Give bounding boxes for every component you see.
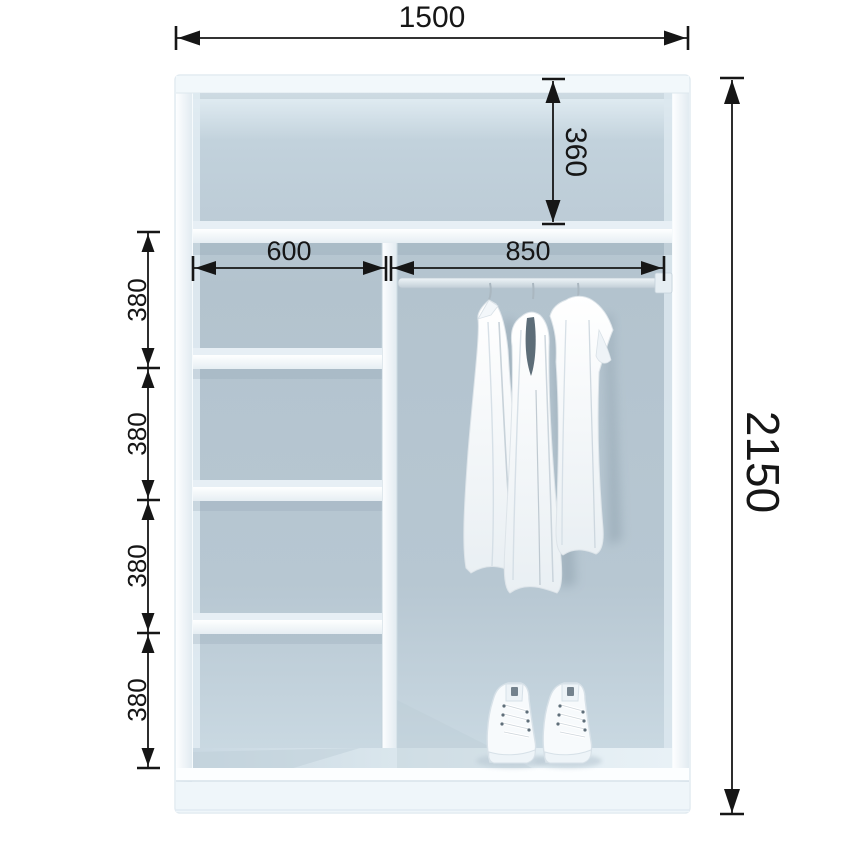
dim-overall-width: 1500 [176,1,688,50]
plinth [176,782,689,812]
dim-label-380-1: 380 [122,278,152,321]
left-shelf-2 [193,480,382,511]
dim-label-360: 360 [559,127,592,177]
dim-label-2150: 2150 [737,411,789,513]
dim-label-1500: 1500 [399,1,466,34]
dim-label-380-2: 380 [122,412,152,455]
wardrobe [175,75,690,813]
sneaker-left [487,683,535,763]
dim-label-380-3: 380 [122,544,152,587]
diagram-canvas: 1500 360 600 850 [0,0,868,868]
cabinet-right-panel [673,76,689,812]
bottom-front-edge [176,768,689,781]
cabinet-top-panel [176,76,689,93]
dim-shelf-gap-chain: 380 380 380 380 [122,232,160,768]
dim-overall-height: 2150 [720,78,789,814]
top-compartment [193,93,672,229]
wardrobe-dimension-drawing: 1500 360 600 850 [0,0,868,868]
sneaker-right [543,683,591,763]
cabinet-left-panel [176,76,192,812]
left-shelf-1 [193,348,382,379]
center-divider [382,243,397,772]
left-shelf-3 [193,613,382,644]
dim-label-850: 850 [505,236,550,266]
dim-label-600: 600 [266,236,311,266]
dim-label-380-4: 380 [122,678,152,721]
top-shelf [193,221,672,255]
